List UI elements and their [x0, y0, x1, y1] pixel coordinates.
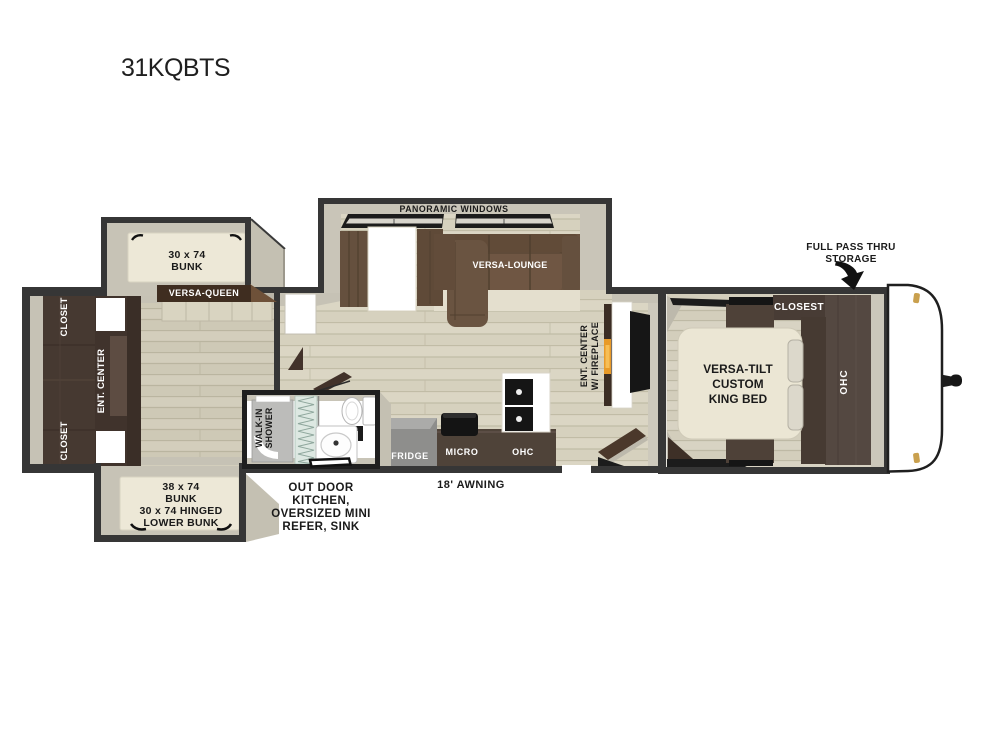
svg-text:W/ FIREPLACE: W/ FIREPLACE — [590, 322, 600, 390]
svg-text:FRIDGE: FRIDGE — [391, 451, 429, 461]
svg-text:FULL PASS THRU: FULL PASS THRU — [806, 242, 895, 253]
svg-text:ENT. CENTER: ENT. CENTER — [96, 349, 107, 413]
svg-text:OUT DOOR: OUT DOOR — [288, 482, 353, 494]
svg-text:BUNK: BUNK — [165, 493, 197, 505]
svg-text:SHOWER: SHOWER — [264, 407, 274, 448]
svg-text:KITCHEN,: KITCHEN, — [292, 495, 350, 507]
svg-text:VERSA-QUEEN: VERSA-QUEEN — [169, 288, 239, 298]
svg-text:LOWER BUNK: LOWER BUNK — [143, 517, 218, 529]
svg-text:CLOSET: CLOSET — [59, 297, 69, 336]
svg-text:18' AWNING: 18' AWNING — [437, 479, 505, 491]
svg-text:STORAGE: STORAGE — [825, 254, 876, 265]
svg-text:30 x 74 HINGED: 30 x 74 HINGED — [140, 505, 223, 517]
svg-text:WALK-IN: WALK-IN — [254, 408, 264, 447]
svg-text:VERSA-LOUNGE: VERSA-LOUNGE — [473, 260, 548, 270]
svg-text:OVERSIZED MINI: OVERSIZED MINI — [271, 508, 371, 520]
svg-text:CLOSET: CLOSET — [59, 421, 69, 460]
svg-text:ENT. CENTER: ENT. CENTER — [579, 325, 589, 388]
svg-text:REFER, SINK: REFER, SINK — [282, 521, 360, 533]
svg-text:38 x 74: 38 x 74 — [162, 481, 199, 493]
svg-text:30 x 74: 30 x 74 — [168, 249, 205, 261]
svg-text:31KQBTS: 31KQBTS — [121, 54, 230, 82]
svg-text:OHC: OHC — [839, 369, 850, 394]
svg-text:CLOSEST: CLOSEST — [774, 302, 824, 313]
svg-text:PANORAMIC WINDOWS: PANORAMIC WINDOWS — [399, 204, 508, 214]
svg-text:VERSA-TILT: VERSA-TILT — [703, 362, 773, 376]
svg-text:OHC: OHC — [512, 447, 534, 457]
svg-text:MICRO: MICRO — [446, 447, 479, 457]
svg-text:BUNK: BUNK — [171, 261, 203, 273]
svg-text:CUSTOM: CUSTOM — [712, 377, 764, 391]
svg-text:KING BED: KING BED — [709, 392, 768, 406]
